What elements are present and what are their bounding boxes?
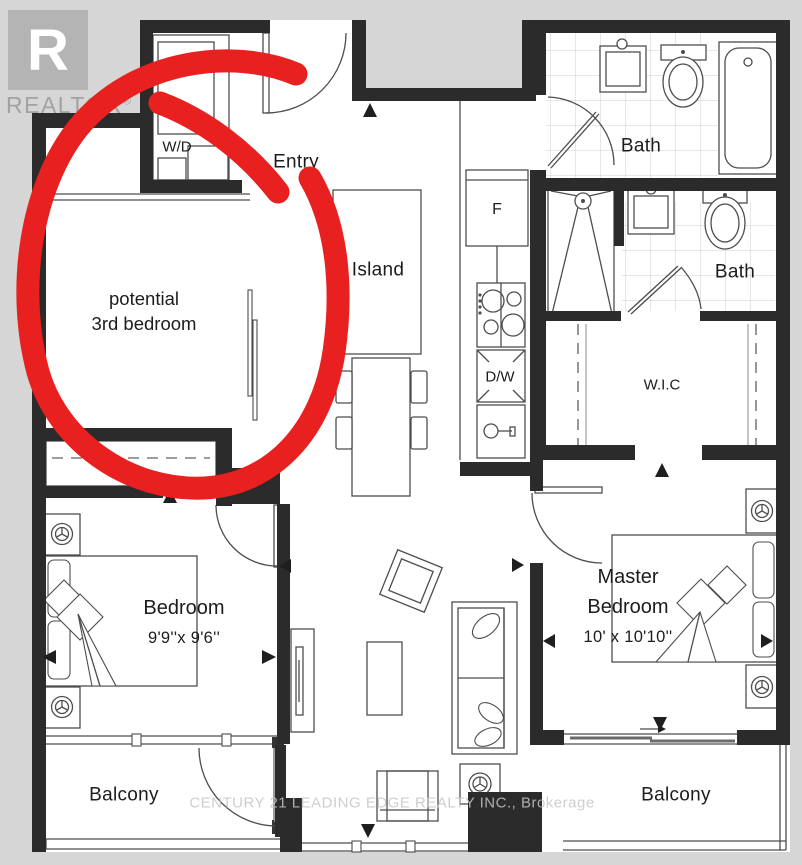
sliding-panel [248,290,252,396]
entry-door-leaf [263,33,269,113]
kitchen-sink [477,405,525,458]
nightstand [45,514,80,555]
dining-chair [336,371,352,403]
bed [612,535,778,662]
floorplan-image: R REALTOR® potential 3rd bedroom W/D Ent… [0,0,802,865]
dining-chair [411,417,427,449]
pillow [48,621,70,679]
floorplan-drawing [0,0,802,865]
toilet [661,45,706,107]
pillow [753,542,774,598]
stove [477,283,525,347]
dining-chair [336,417,352,449]
fridge [466,170,528,246]
coffee-table [367,642,402,715]
registered-mark: ® [123,95,133,107]
toilet [703,188,747,249]
dining-chair [411,371,427,403]
sliding-panel [253,320,257,420]
tv-console [291,629,314,732]
bathtub [719,42,777,174]
bed [44,556,197,686]
shower [548,190,614,316]
pillow [753,602,774,657]
realtor-logo-text: REALTOR® [6,92,133,119]
realtor-logo: R [8,10,88,90]
sink [628,184,674,234]
brokerage-watermark: CENTURY 21 LEADING EDGE REALTY INC., Bro… [189,795,594,812]
door-leaf [535,487,602,493]
sofa [452,602,517,754]
realtor-logo-letter: R [27,17,69,84]
nightstand [746,489,778,533]
sink [600,39,646,92]
nightstand [746,665,778,708]
nightstand [45,687,80,728]
dishwasher [477,350,525,402]
kitchen-island [333,190,421,354]
